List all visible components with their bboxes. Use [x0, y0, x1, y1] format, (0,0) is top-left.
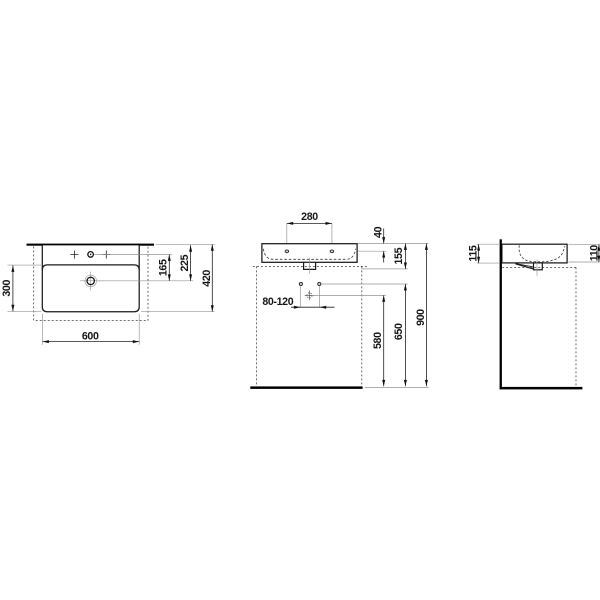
svg-text:80-120: 80-120 — [262, 296, 293, 308]
svg-text:900: 900 — [415, 309, 427, 326]
svg-text:420: 420 — [201, 270, 213, 287]
svg-text:40: 40 — [373, 226, 385, 238]
svg-text:650: 650 — [393, 323, 405, 340]
svg-text:225: 225 — [179, 254, 191, 271]
svg-text:600: 600 — [82, 330, 99, 342]
svg-text:300: 300 — [1, 280, 13, 297]
svg-text:580: 580 — [372, 332, 384, 349]
svg-text:155: 155 — [393, 247, 405, 264]
svg-text:280: 280 — [301, 211, 318, 223]
svg-text:110: 110 — [588, 245, 600, 261]
svg-text:165: 165 — [158, 259, 170, 276]
svg-text:115: 115 — [468, 245, 480, 261]
